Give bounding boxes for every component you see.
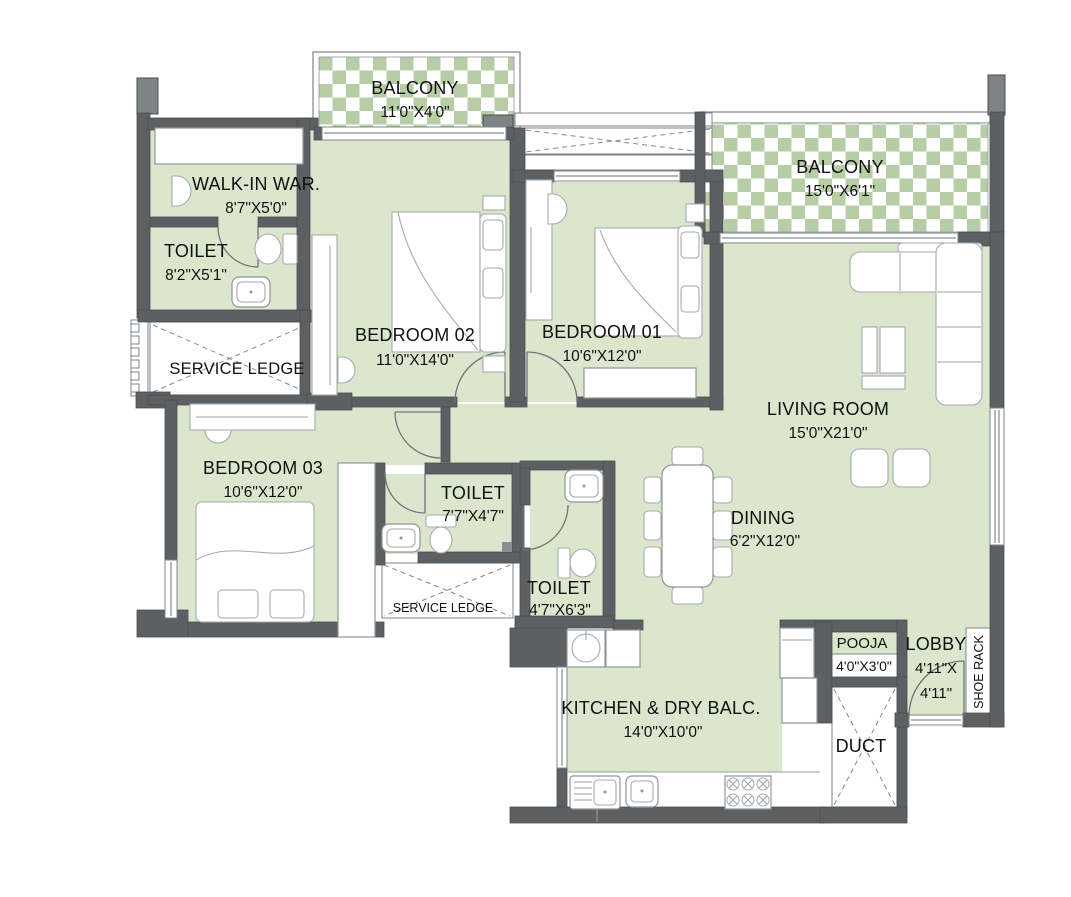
room-label-kitchen: KITCHEN & DRY BALC. [561,698,760,718]
entrance-sill [909,715,963,725]
room-dim-dining: 6'2"X12'0" [730,533,800,550]
room-label-toilet-mid: TOILET [441,483,505,503]
room-dim-bedroom03: 10'6"X12'0" [224,484,303,501]
room-label-toilet-tl: TOILET [164,241,228,261]
bedroom03-bed [196,502,314,622]
service-ledge-above-bedroom01 [515,113,712,170]
room-label-toilet-bottom: TOILET [527,578,591,598]
room-dim-pooja: 4'0"X3'0" [836,658,892,674]
living-room-window [990,408,1004,545]
bedroom02-bed [392,196,506,372]
label-service-ledge-left: SERVICE LEDGE [169,360,304,378]
balcony-tl-slider-window [322,127,506,140]
room-label-pooja: POOJA [837,635,888,652]
bedroom01-window [554,171,680,181]
room-label-walk-in: WALK-IN WAR. [192,174,320,194]
room-label-duct: DUCT [836,736,887,756]
floor-plan-drawing: BALCONY 11'0"X4'0" WALK-IN WAR. 8'7"X5'0… [0,0,1071,897]
room-label-dining: DINING [731,508,795,528]
toilet-bottom-wc [558,548,596,578]
kitchen-fridge [780,628,817,723]
room-dim-walk-in: 8'7"X5'0" [225,200,287,217]
kitchen-stove [725,776,771,809]
room-label-lobby: LOBBY [905,634,966,654]
toilet-tl-wc [255,234,297,264]
room-label-balcony-tl: BALCONY [371,78,458,98]
bedroom03-window [165,560,177,618]
room-label-bedroom02: BEDROOM 02 [355,325,475,345]
room-dim-lobby-1: 4'11"X [915,660,957,677]
room-label-bedroom01: BEDROOM 01 [542,322,662,342]
room-dim-balcony-tl: 11'0"X4'0" [380,104,449,121]
room-dim-balcony-tr: 15'0"X6'1" [805,183,875,200]
toilet-tl-basin [232,277,270,307]
room-dim-living: 15'0"X21'0" [789,425,868,442]
kitchen-wash-counter [567,630,640,667]
room-dim-lobby-2: 4'11" [920,685,952,702]
toilet-mid-shower [502,542,512,552]
room-dim-toilet-mid: 7'7"X4'7" [442,508,504,525]
bedroom01-wardrobe [584,368,696,398]
label-shoe-rack: SHOE RACK [972,635,986,709]
label-service-ledge-bottom: SERVICE LEDGE [393,601,494,615]
balcony-tr-slider-window [720,233,958,243]
floor-plan-page: BALCONY 11'0"X4'0" WALK-IN WAR. 8'7"X5'0… [0,0,1071,897]
room-dim-bedroom01: 10'6"X12'0" [563,348,642,365]
bedroom03-wardrobe [338,463,375,637]
room-dim-toilet-tl: 8'2"X5'1" [165,267,227,284]
service-ledge-left-box [131,320,308,396]
room-dim-kitchen: 14'0"X10'0" [624,724,703,741]
room-label-bedroom03: BEDROOM 03 [203,458,323,478]
room-dim-toilet-bottom: 4'7"X6'3" [529,602,591,619]
living-room-tv-unit [862,327,905,389]
room-dim-bedroom02: 11'0"X14'0" [376,352,454,369]
toilet-mid-basin [382,524,420,552]
toilet-bottom-basin [565,470,603,502]
room-label-living: LIVING ROOM [767,399,889,419]
room-label-balcony-tr: BALCONY [796,157,883,177]
